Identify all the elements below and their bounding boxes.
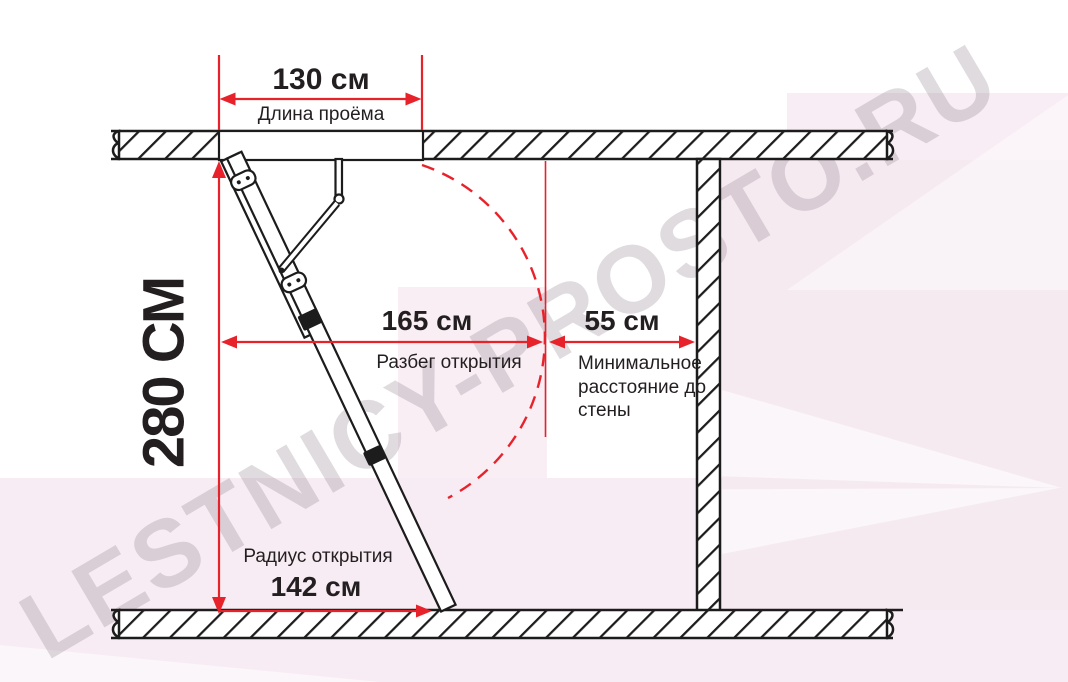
dim-opening-length-value: 130 см <box>272 63 369 97</box>
ceiling-break-left <box>113 131 120 159</box>
dim-wall-distance-label: Минимальное расстояние до стены <box>578 352 724 423</box>
dim-opening-length-label: Длина проёма <box>258 104 385 126</box>
floor-break-right <box>886 610 893 638</box>
arrowhead-left <box>220 93 236 106</box>
arrowhead-left <box>221 336 237 349</box>
dim-ceiling-height-value: 280 СМ <box>131 278 198 468</box>
strut-lower-pin <box>279 268 285 274</box>
floor-break-left <box>113 610 120 638</box>
spring-strut-mechanism <box>279 159 344 274</box>
attic-ladder-dimensions-diagram: LESTNICY-PROSTO.RU <box>0 0 1068 682</box>
dim-opening-radius-value: 142 см <box>271 571 362 603</box>
floor-slab <box>111 610 903 638</box>
arrowhead-left <box>549 336 565 349</box>
ceiling-slab <box>111 131 893 160</box>
dim-opening-run-label: Разбег открытия <box>376 352 521 374</box>
dim-opening-radius-label: Радиус открытия <box>243 546 392 568</box>
ladder <box>221 150 460 614</box>
ceiling-opening <box>219 131 423 160</box>
strut-arm-body <box>281 203 337 270</box>
ceiling-break-right <box>886 131 893 159</box>
arrowhead-right <box>406 93 422 106</box>
arrowhead-right <box>527 336 543 349</box>
dim-wall-distance-value: 55 см <box>584 305 659 337</box>
ladder-main-rail <box>227 152 456 612</box>
ceiling-hatch-right <box>423 131 887 159</box>
strut-mount-rod <box>336 159 343 195</box>
arrowhead-right <box>679 336 695 349</box>
dim-opening-run-value: 165 см <box>382 305 473 337</box>
floor-hatch <box>119 610 887 638</box>
ceiling-hatch-left <box>119 131 219 159</box>
